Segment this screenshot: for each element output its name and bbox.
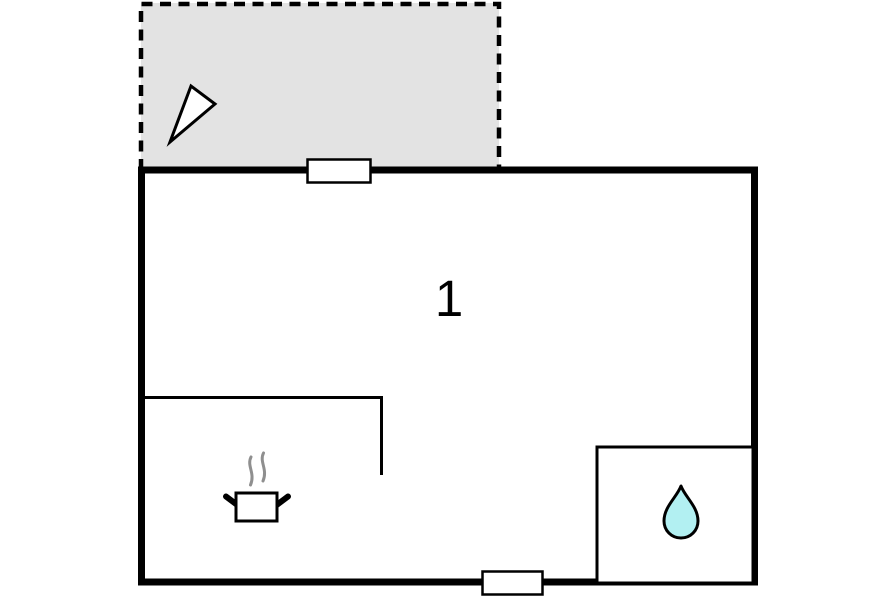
entrance-door	[483, 572, 543, 595]
room-label: 1	[435, 270, 463, 327]
floor-plan: 1	[0, 0, 896, 597]
terrace-door	[308, 160, 371, 183]
terrace-area	[141, 3, 499, 170]
